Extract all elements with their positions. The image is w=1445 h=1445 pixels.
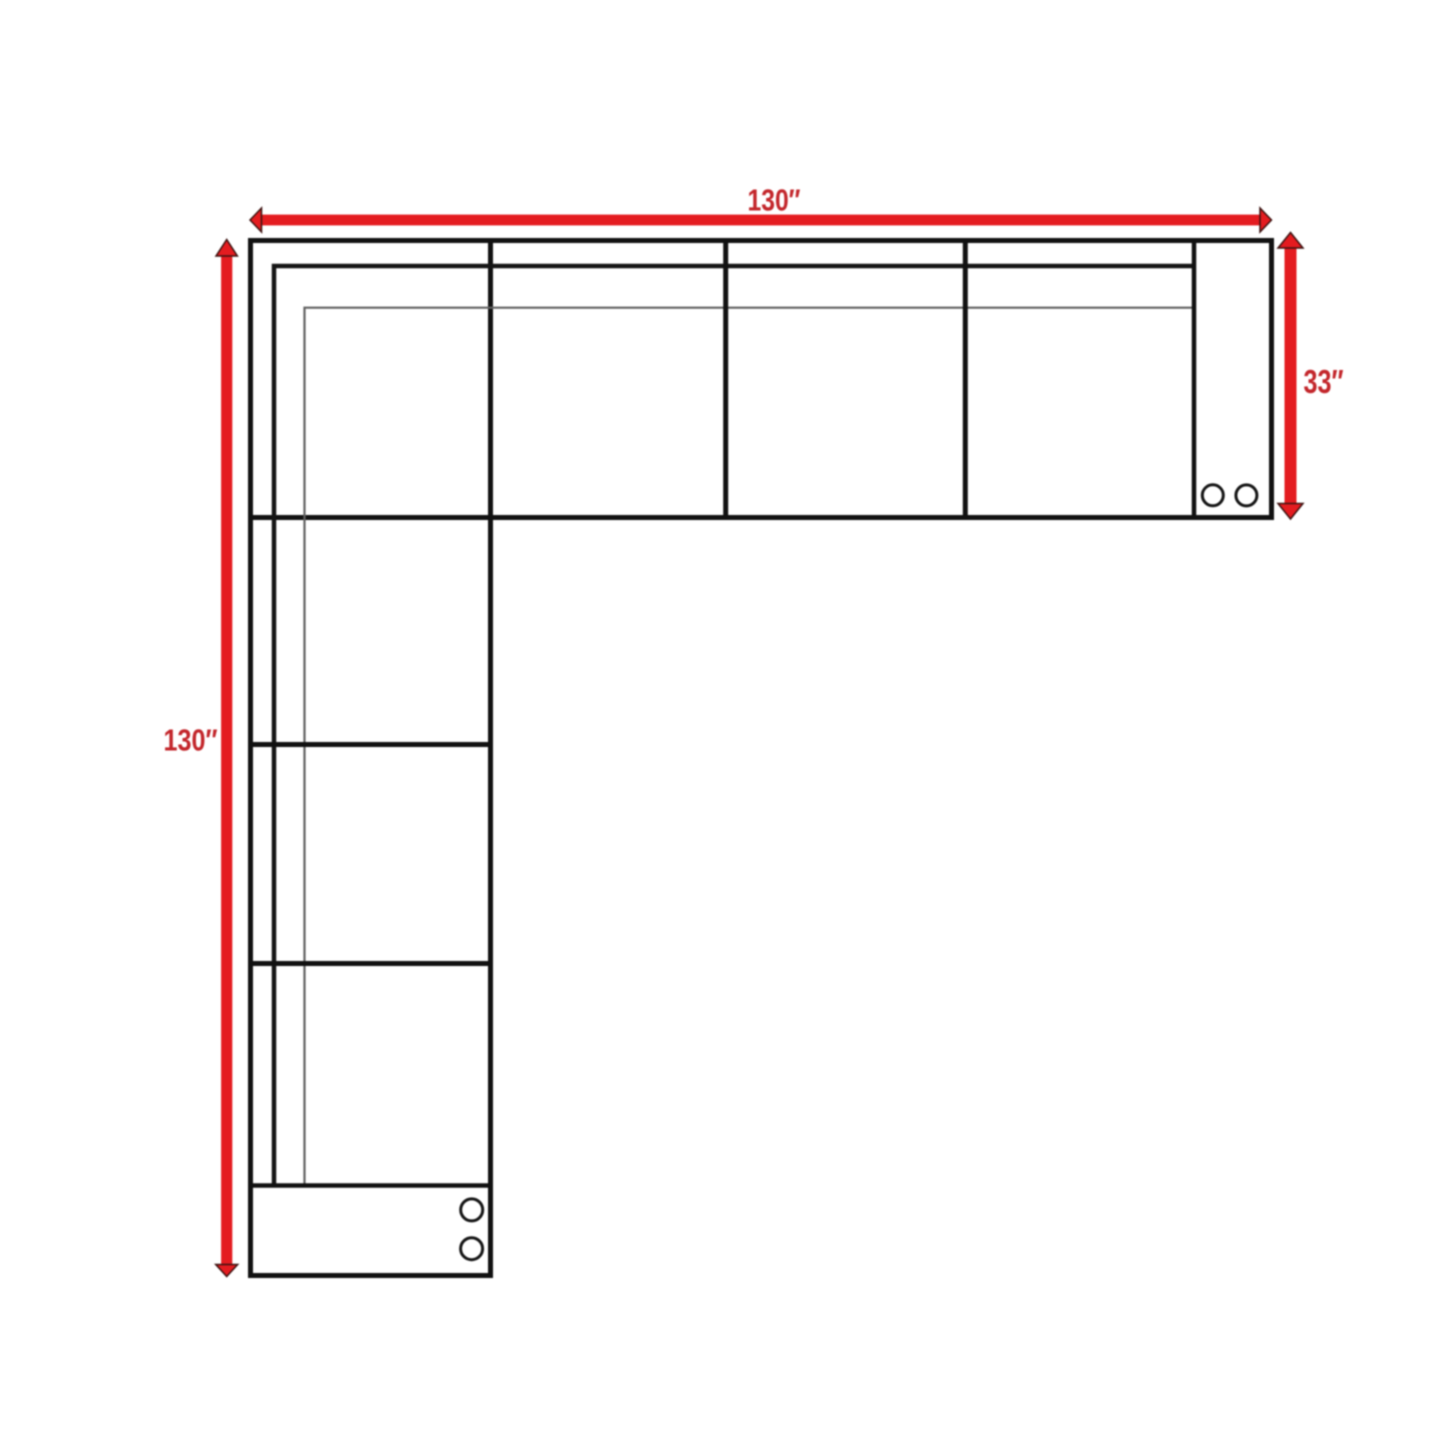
svg-text:130″: 130″ [164,723,218,758]
svg-text:130″: 130″ [748,183,801,218]
svg-text:33″: 33″ [1304,363,1344,400]
